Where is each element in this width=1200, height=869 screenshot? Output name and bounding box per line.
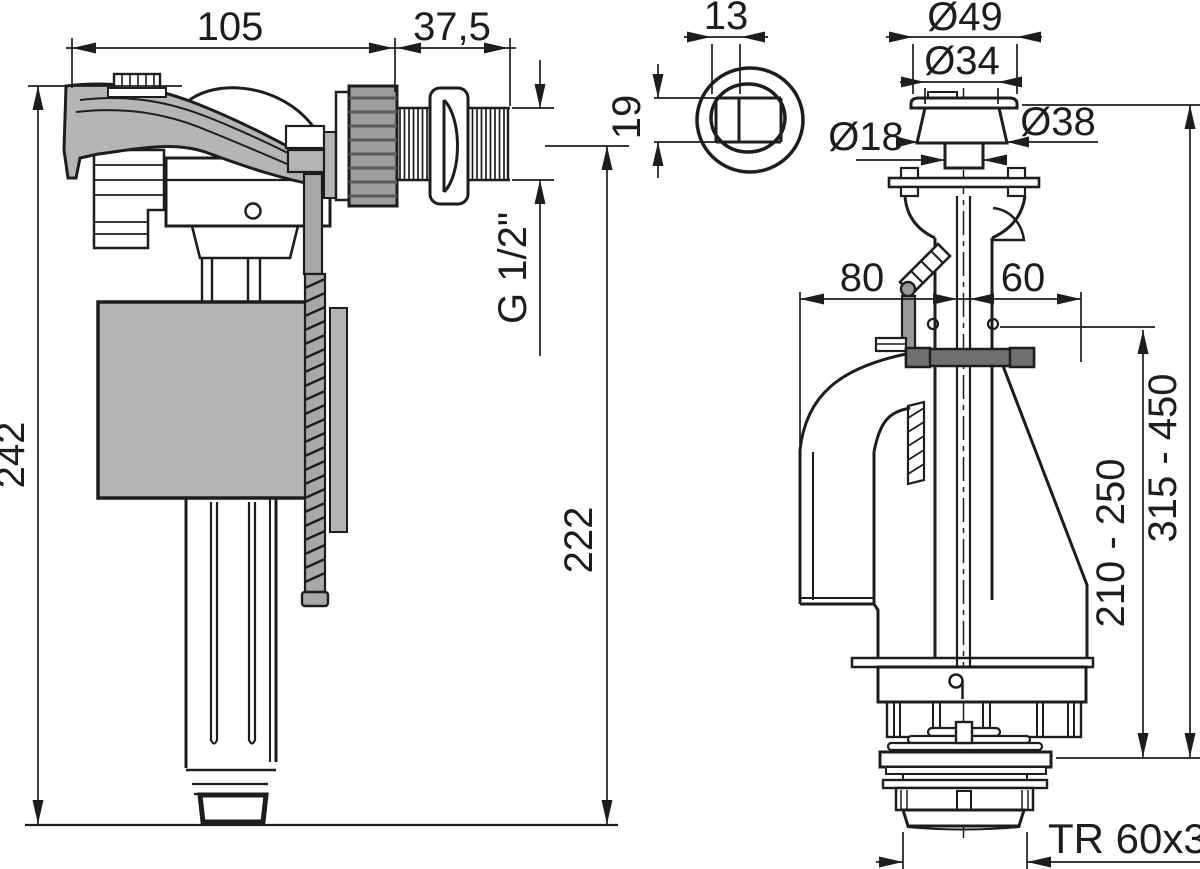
dim-inner-range: 210 - 250 [1089, 458, 1133, 627]
technical-drawing-page: 105 37,5 242 222 G 1/2" [0, 0, 1200, 869]
valve-dimension-drawing: 105 37,5 242 222 G 1/2" [0, 0, 1200, 869]
push-button-front-view [697, 68, 803, 172]
float-guide-rail [330, 308, 347, 532]
dim-body-width: 105 [197, 5, 264, 49]
dim-cap-diameter: Ø49 [927, 0, 1003, 39]
base-flange [880, 752, 1051, 767]
overflow-elbow [800, 354, 924, 604]
dim-button-small-width: 13 [704, 0, 749, 38]
dim-base-thread: TR 60x3 [1048, 815, 1200, 862]
float-body [98, 302, 308, 498]
base-thread-ring [903, 810, 1024, 826]
dim-outer-range: 315 - 450 [1141, 373, 1185, 542]
dim-offset-right: 60 [1001, 256, 1046, 300]
dim-stem-diameter: Ø18 [828, 115, 904, 159]
valve-lower-tube [186, 498, 276, 822]
dim-total-height: 242 [0, 422, 33, 489]
dim-offset-left: 80 [840, 256, 885, 300]
adjustment-clamp [906, 348, 1034, 367]
flush-valve-view [697, 68, 1093, 838]
plastic-nut [349, 86, 397, 206]
dim-thread-size: G 1/2" [491, 212, 535, 324]
dim-button-window-height: 19 [605, 95, 649, 140]
dim-bezel-diameter: Ø38 [1020, 100, 1096, 144]
dim-body-diameter: Ø34 [924, 39, 1000, 83]
inlet-thread-assembly [336, 86, 510, 206]
dim-thread-length: 37,5 [413, 5, 491, 49]
valve-foot [200, 795, 266, 822]
section-hatch [908, 402, 924, 484]
fill-valve-view [25, 74, 618, 825]
dim-axis-height: 222 [557, 507, 601, 574]
